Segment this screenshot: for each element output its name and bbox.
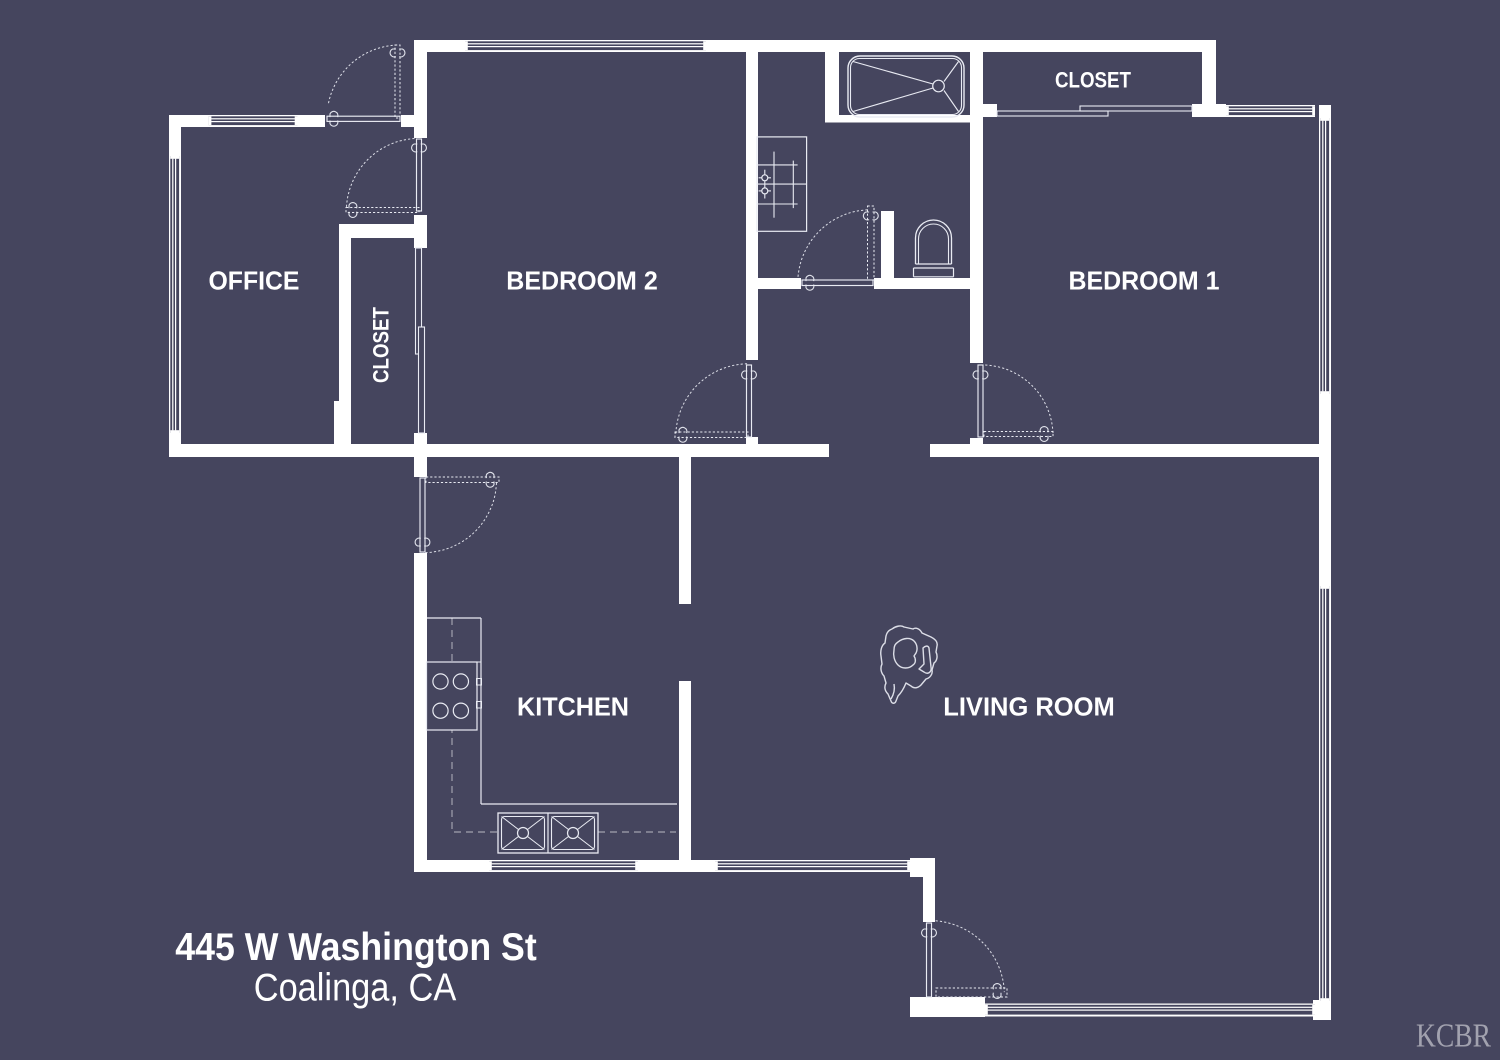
svg-text:OFFICE: OFFICE	[209, 266, 300, 296]
svg-text:CLOSET: CLOSET	[1055, 67, 1131, 92]
svg-text:445 W Washington St: 445 W Washington St	[175, 926, 537, 969]
svg-text:BEDROOM 1: BEDROOM 1	[1069, 266, 1220, 296]
svg-text:KCBR: KCBR	[1416, 1018, 1491, 1055]
svg-text:BEDROOM 2: BEDROOM 2	[506, 266, 658, 296]
svg-text:Coalinga, CA: Coalinga, CA	[254, 967, 457, 1010]
svg-text:LIVING ROOM: LIVING ROOM	[943, 692, 1115, 722]
svg-text:CLOSET: CLOSET	[369, 307, 394, 383]
svg-text:KITCHEN: KITCHEN	[517, 692, 629, 722]
